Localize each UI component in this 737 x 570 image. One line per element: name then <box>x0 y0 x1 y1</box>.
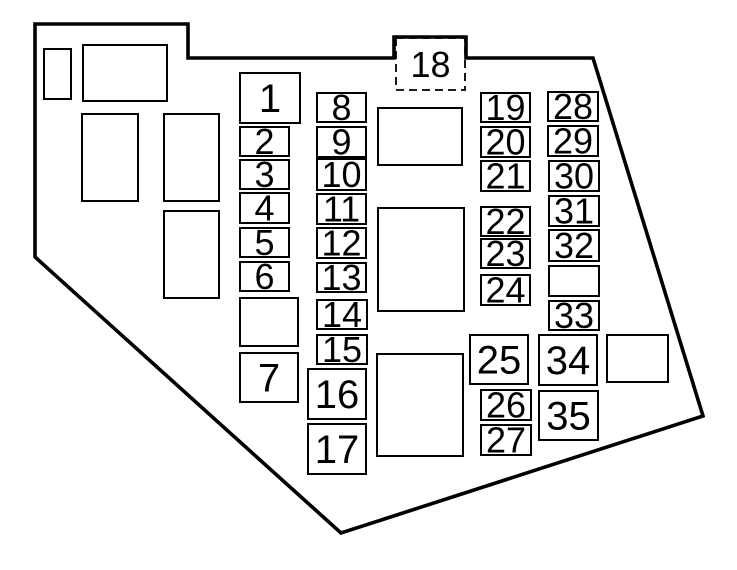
fuse-number: 1 <box>259 77 281 121</box>
fuse-number: 23 <box>485 233 525 274</box>
fuse-slot-6: 6 <box>240 256 289 297</box>
fuse-slot-34: 34 <box>539 335 597 385</box>
fuse-slot-35: 35 <box>539 391 598 440</box>
diagram-canvas: 1234567891011121314151617192021222324252… <box>0 0 737 570</box>
blank-slot <box>378 208 464 311</box>
fuse-number: 15 <box>322 329 362 370</box>
fuse-number: 24 <box>485 270 525 311</box>
fuse-slot-23: 23 <box>481 233 530 274</box>
blank-slot <box>44 49 71 99</box>
fuse-slot-33: 33 <box>549 295 599 336</box>
fuse-slot-24: 24 <box>481 270 530 311</box>
blank-slot <box>240 298 298 346</box>
fuse-number: 13 <box>321 257 361 298</box>
fuse-slot-32: 32 <box>549 225 599 266</box>
fuse-slot-17: 17 <box>308 424 366 474</box>
fuse-slot-27: 27 <box>481 420 531 461</box>
fuse-slot-16: 16 <box>308 369 366 419</box>
blank-slot <box>607 335 668 382</box>
fuse-slot-15: 15 <box>317 329 367 370</box>
fuse-number: 25 <box>477 339 522 383</box>
fuse-slot-25: 25 <box>470 335 528 384</box>
fuse-number: 17 <box>315 428 360 472</box>
blank-slot <box>549 266 599 296</box>
fuse-slot-13: 13 <box>317 257 366 298</box>
fuse-number: 21 <box>485 156 525 197</box>
fuse-slot-7: 7 <box>240 353 298 402</box>
fuse-number: 7 <box>258 357 280 401</box>
fuse-slot-21: 21 <box>481 156 530 197</box>
fuse-number: 35 <box>546 395 591 439</box>
fuse-box-diagram: 1234567891011121314151617192021222324252… <box>0 0 737 570</box>
blank-slot <box>377 354 463 456</box>
blank-slot <box>378 108 462 165</box>
fuse-number: 16 <box>315 373 360 417</box>
fuse-number: 33 <box>554 295 594 336</box>
fuse-number: 32 <box>554 225 594 266</box>
fuse-number: 6 <box>254 256 274 297</box>
blank-slot <box>82 114 138 201</box>
blank-slot <box>164 211 219 298</box>
fuse-number: 34 <box>546 339 591 383</box>
fuse-number: 27 <box>486 420 526 461</box>
fuse-number: 18 <box>410 44 450 85</box>
blank-slot <box>164 114 219 201</box>
fuse-slot-1: 1 <box>240 73 300 123</box>
blank-slot <box>83 45 167 101</box>
